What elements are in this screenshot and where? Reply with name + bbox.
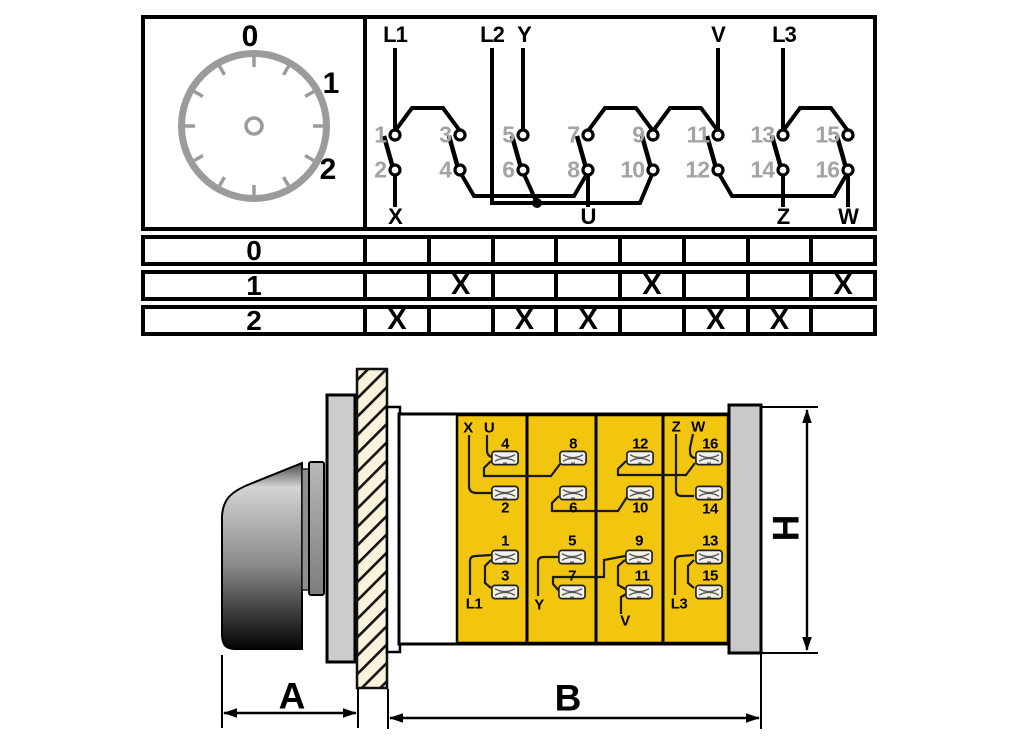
contact-number: 6 [502,159,514,182]
wire-U-4 [487,435,492,457]
contact-number: 3 [439,124,451,147]
table-cell [491,239,555,262]
block-terminal-number: 7 [568,569,576,584]
table-cell [427,239,491,262]
row-label: 1 [145,274,363,297]
handle-neck [302,469,310,590]
handle-collar [309,462,324,595]
dimension-label-B: B [555,680,582,717]
block-terminal-number: 3 [501,569,509,584]
terminal-label-Z: Z [777,206,789,228]
contact-number: 4 [439,159,451,182]
terminal-label-L3: L3 [772,24,796,46]
terminal-clamps [492,451,722,598]
wire-13-15 [688,560,694,588]
table-cell [809,239,873,262]
table-cell [491,274,555,297]
block-terminal-number: 4 [501,437,509,452]
table-cell: X [363,309,427,332]
table-row-position-0: 0 [141,235,877,266]
contact-number: 7 [567,124,579,147]
table-cell: X [682,309,746,332]
contact-number: 5 [502,124,514,147]
table-cell [746,274,810,297]
wire-W-16 [690,434,695,458]
table-cell: X [491,309,555,332]
block-label-Y: Y [534,598,544,613]
table-cell [746,239,810,262]
table-cell [809,309,873,332]
table-cell [618,309,682,332]
terminal-label-U: U [581,206,596,228]
block-terminal-number: 13 [702,534,718,549]
wire-Y-5 [538,557,559,596]
block-terminal-number: 5 [568,534,576,549]
terminal-label-L2: L2 [480,24,504,46]
table-cell [682,239,746,262]
row-label: 0 [145,239,363,262]
mounting-panel-hatched [357,369,387,688]
table-cell [682,274,746,297]
terminal-label-L1: L1 [383,24,407,46]
wire-X-2 [469,435,491,493]
contact-number: 10 [620,159,644,182]
table-cell [618,239,682,262]
block-terminal-number: 2 [501,501,509,516]
contact-number: 13 [750,124,774,147]
block-terminal-number: 16 [702,437,718,452]
row-label: 2 [145,309,363,332]
terminal-label-V: V [711,24,725,46]
table-row-position-1: 1 X X X [141,270,877,301]
block-terminal-number: 12 [632,437,648,452]
contact-number: 1 [374,124,386,147]
block-label-X: X [463,421,473,436]
terminal-label-W: W [838,206,858,228]
block-terminal-number: 9 [635,534,643,549]
table-cell: X [618,274,682,297]
wire-L3-13 [675,555,694,595]
wire-1-3 [485,560,491,588]
block-terminal-number: 11 [635,569,650,584]
wire-L1-1 [470,555,491,595]
block-terminal-number: 6 [569,501,577,516]
contact-number: 9 [632,124,644,147]
flange-spacer [387,407,400,652]
contact-number: 15 [815,124,839,147]
wire-Z-14 [676,434,694,496]
contact-number: 2 [374,159,386,182]
contact-number: 14 [750,159,774,182]
table-cell: X [427,274,491,297]
block-label-L1: L1 [466,597,483,612]
handle-knob [222,463,302,649]
block-label-Z: Z [672,420,681,435]
block-label-V: V [620,614,630,629]
table-cell [363,239,427,262]
table-cell: X [554,309,618,332]
frame-divider [363,15,367,231]
contact-number: 11 [687,124,709,147]
table-cell: X [809,274,873,297]
block-label-W: W [691,420,705,435]
wire-4-8 [484,461,560,476]
switch-side-view [222,369,761,688]
dimension-label-H: H [768,515,805,542]
contact-number: 16 [815,159,839,182]
block-terminal-number: 8 [569,437,577,452]
table-cell [363,274,427,297]
block-terminal-number: 14 [702,502,718,517]
cam-switch-datasheet-diagram: 0 1 2 L1 L2 Y V L3 X U Z W 1 3 5 7 9 11 … [0,0,1024,747]
terminal-label-X: X [388,206,402,228]
block-label-L3: L3 [671,597,688,612]
dimension-lines [222,407,818,729]
contact-number: 12 [685,159,709,182]
dial-position-0: 0 [242,22,259,52]
block-terminal-number: 1 [501,534,509,549]
dial-position-2: 2 [320,155,337,185]
wire-7-9 [553,556,625,592]
end-plate [729,405,761,653]
block-terminal-number: 15 [702,569,718,584]
wire-9-11 [618,560,627,590]
wire-6-10 [552,496,627,511]
dimension-label-A: A [279,678,306,715]
terminal-label-Y: Y [517,24,531,46]
wire-V-11 [621,593,628,614]
table-row-position-2: 2 X X X X X [141,305,877,336]
block-terminal-number: 10 [632,501,648,516]
block-label-U: U [484,421,494,436]
table-cell [554,239,618,262]
table-cell: X [746,309,810,332]
table-cell [554,274,618,297]
front-plate [327,395,355,662]
table-cell [427,309,491,332]
terminal-wires [469,434,695,614]
dial-position-1: 1 [323,69,340,99]
contact-number: 8 [567,159,579,182]
wire-12-16 [618,461,695,475]
